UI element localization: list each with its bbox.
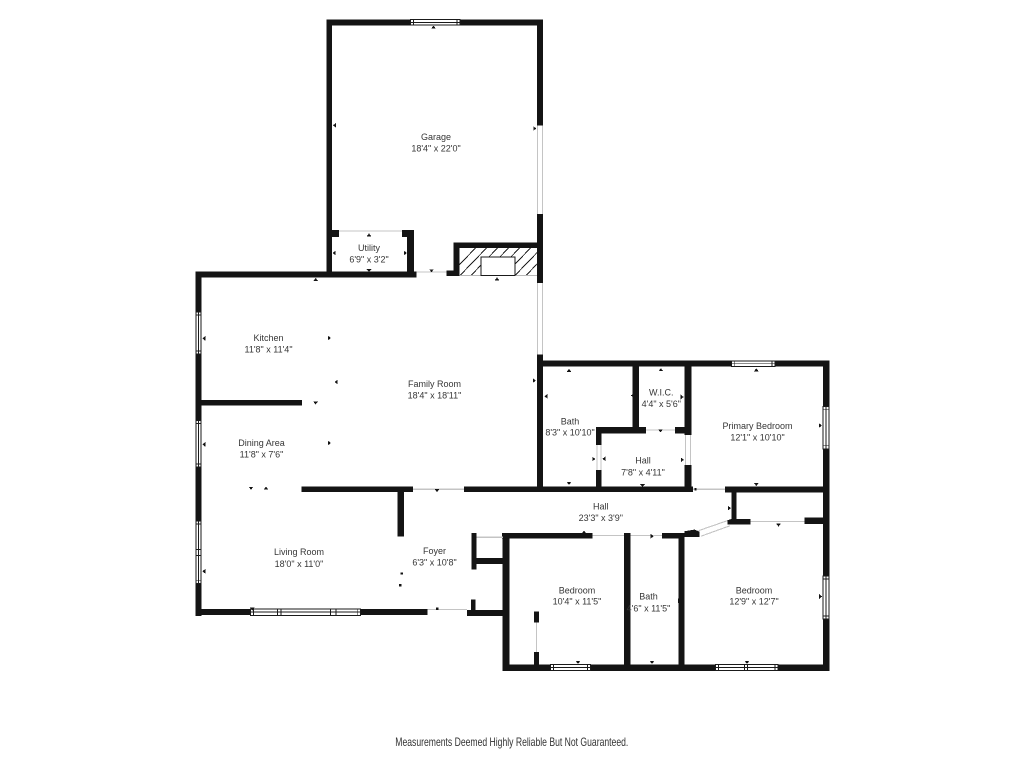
svg-text:7'8" x 4'11": 7'8" x 4'11" (621, 468, 665, 478)
svg-text:6'3" x 10'8": 6'3" x 10'8" (412, 558, 456, 568)
svg-text:Primary Bedroom: Primary Bedroom (722, 421, 792, 431)
svg-text:8'3" x 10'10": 8'3" x 10'10" (545, 428, 594, 438)
svg-text:Living Room: Living Room (274, 547, 324, 557)
svg-text:12'9" x 12'7": 12'9" x 12'7" (729, 597, 778, 607)
svg-text:Bath: Bath (639, 592, 658, 602)
svg-text:4'4" x 5'6": 4'4" x 5'6" (642, 399, 681, 409)
svg-text:Dining Area: Dining Area (238, 438, 285, 448)
svg-text:Hall: Hall (593, 502, 609, 512)
svg-text:Measurements Deemed Highly Rel: Measurements Deemed Highly Reliable But … (395, 735, 628, 749)
svg-text:6'9" x 3'2": 6'9" x 3'2" (349, 255, 388, 265)
svg-text:Foyer: Foyer (423, 546, 446, 556)
svg-text:10'4" x 11'5": 10'4" x 11'5" (553, 597, 602, 607)
svg-text:Family Room: Family Room (408, 379, 461, 389)
svg-text:Bedroom: Bedroom (559, 585, 596, 595)
svg-text:18'0" x 11'0": 18'0" x 11'0" (275, 559, 324, 569)
svg-text:23'3" x 3'9": 23'3" x 3'9" (579, 513, 623, 523)
svg-text:Utility: Utility (358, 243, 380, 253)
svg-text:12'1" x 10'10": 12'1" x 10'10" (730, 433, 784, 443)
svg-text:Bath: Bath (561, 417, 580, 427)
svg-text:W.I.C.: W.I.C. (649, 388, 674, 398)
svg-text:Hall: Hall (635, 456, 651, 466)
svg-text:Garage: Garage (421, 132, 451, 142)
svg-text:Bedroom: Bedroom (736, 585, 773, 595)
svg-text:18'4" x 22'0": 18'4" x 22'0" (411, 144, 460, 154)
svg-text:11'8" x 7'6": 11'8" x 7'6" (240, 450, 284, 460)
svg-text:18'4" x 18'11": 18'4" x 18'11" (408, 390, 462, 400)
svg-text:Kitchen: Kitchen (253, 333, 283, 343)
svg-text:4'6" x 11'5": 4'6" x 11'5" (627, 603, 671, 613)
svg-text:11'8" x 11'4": 11'8" x 11'4" (244, 345, 292, 355)
